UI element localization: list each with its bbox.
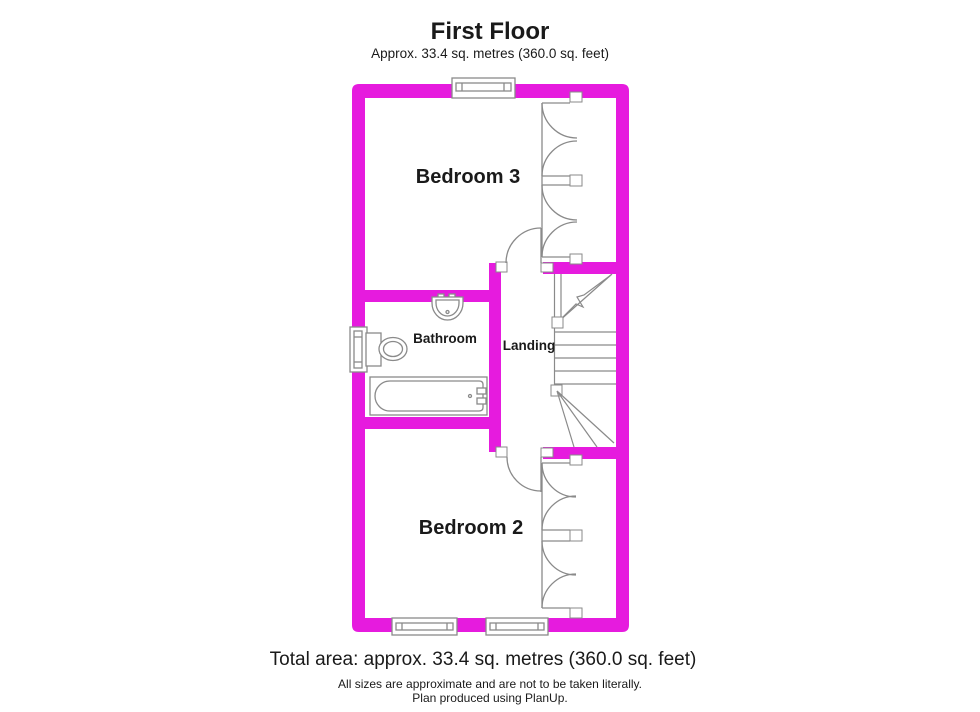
tap-icon (477, 398, 486, 404)
page-subtitle: Approx. 33.4 sq. metres (360.0 sq. feet) (371, 46, 609, 61)
stair-winder-line (558, 274, 612, 322)
window-bathroom (350, 327, 367, 372)
tap-icon (477, 388, 486, 394)
window-bottom-right (486, 618, 548, 635)
sink (432, 294, 463, 320)
stair-newel (552, 317, 563, 328)
window-bottom-left (392, 618, 457, 635)
window-top (452, 78, 515, 98)
door-swing (507, 457, 541, 491)
page-title: First Floor (431, 18, 550, 45)
door-swing (542, 185, 577, 220)
bedroom2-door (507, 457, 541, 492)
bathroom-top-wall (352, 290, 501, 302)
landing-label: Landing (503, 338, 556, 353)
bathtub (370, 377, 487, 415)
door-swing (542, 541, 576, 575)
stair-winder-line (557, 391, 614, 447)
door-swing (542, 574, 576, 608)
toilet (366, 333, 407, 366)
bedroom3-door (506, 228, 541, 263)
stair-treads (554, 332, 616, 384)
bedroom2-label: Bedroom 2 (419, 517, 523, 539)
door-swing (542, 103, 577, 138)
credit-text: Plan produced using PlanUp. (412, 691, 567, 705)
total-area-text: Total area: approx. 33.4 sq. metres (360… (270, 649, 697, 670)
door-swing (506, 228, 541, 263)
disclaimer-text: All sizes are approximate and are not to… (338, 677, 642, 691)
staircase (551, 274, 616, 447)
floor-plan: First Floor Approx. 33.4 sq. metres (360… (0, 0, 980, 712)
floorplan-page: First Floor Approx. 33.4 sq. metres (360… (0, 0, 980, 712)
bathroom-label: Bathroom (413, 331, 477, 346)
door-swing (542, 463, 576, 497)
bathroom-bottom-wall (352, 417, 501, 429)
door-swing (542, 496, 576, 530)
door-swing (542, 141, 577, 176)
bedroom3-label: Bedroom 3 (416, 166, 520, 188)
door-swing (542, 222, 577, 257)
